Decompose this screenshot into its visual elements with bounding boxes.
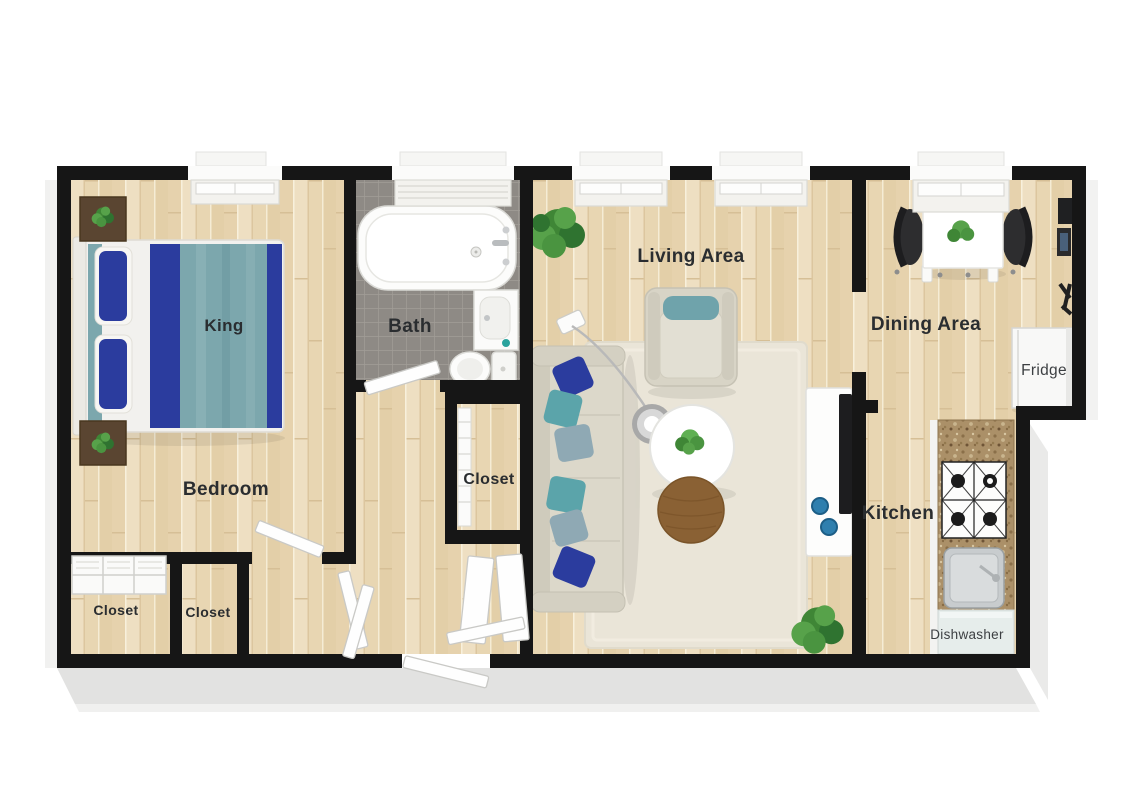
floor-plan: King [0,0,1140,793]
window-living-2 [712,152,810,206]
closet-left-label: Closet [93,602,138,618]
armchair [645,288,737,386]
decor-bowl [812,498,828,514]
kitchen-label: Kitchen [862,503,934,524]
floor-plan-page: King [0,0,1140,793]
tv-screen [839,394,852,514]
tv-console [806,388,852,556]
sofa [531,346,625,612]
bath-label: Bath [388,316,432,337]
dining-area-label: Dining Area [871,314,981,335]
soap-accent [502,339,510,347]
closet-shelves-left [72,556,166,594]
closet-right-label: Closet [185,604,230,620]
window-dining [910,152,1012,212]
hall-closet-label: Closet [463,471,515,488]
nightstand-top [80,197,126,241]
window-bedroom [188,152,282,204]
pillow-navy [99,251,127,321]
kitchen-sink [944,548,1004,608]
nightstand-bottom [80,421,126,465]
king-bed: King [73,237,284,435]
decor-bowl [821,519,837,535]
pillow-navy [99,339,127,409]
window-living-1 [572,152,670,206]
ottoman [658,477,724,543]
bathtub [358,206,516,290]
window-bath [392,152,514,206]
closet-shelf-hall [458,408,471,526]
dishwasher-label: Dishwasher [930,627,1004,642]
bed-size-label: King [204,316,243,335]
pillow-slate [553,423,594,463]
pillow-teal [545,475,586,515]
stove [942,462,1006,538]
pillow-teal [663,296,719,320]
fridge-label: Fridge [1021,362,1067,379]
kitchen-counter [930,420,1014,654]
bath-vanity-sink [474,290,518,350]
bedroom-label: Bedroom [183,479,269,500]
living-area-label: Living Area [637,246,744,267]
